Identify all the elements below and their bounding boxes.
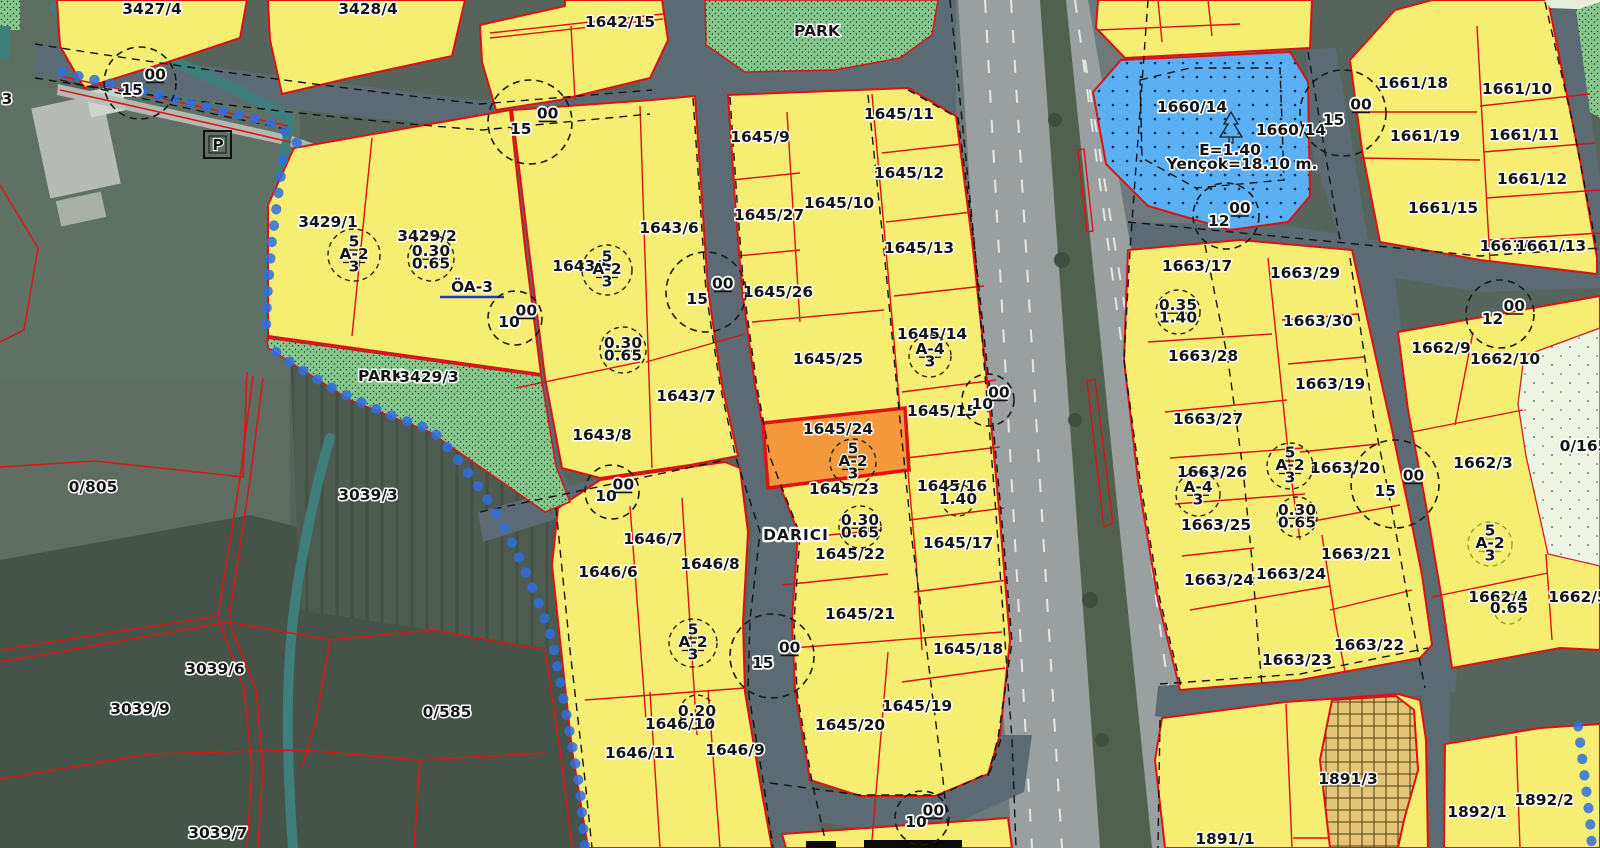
parcel-label: 1645/10 xyxy=(804,194,875,212)
parcel-label: 0/585 xyxy=(423,703,472,721)
parcel-label: 1645/22 xyxy=(815,545,885,563)
parking-symbol: P xyxy=(212,136,223,154)
parcel-label: 1661/10 xyxy=(1482,80,1553,98)
road-width-sup: 00 xyxy=(1403,466,1425,484)
parcel-annotation: Yençok=18.10 m. xyxy=(1166,155,1318,173)
parcel-label: 1663/23 xyxy=(1262,651,1332,669)
parcel-label: 3427/4 xyxy=(122,0,182,18)
parcel-label: 3428/4 xyxy=(338,0,398,18)
parcel-label: 1645/26 xyxy=(743,283,813,301)
cadastral-map[interactable]: 33427/43428/4P0/8053039/33039/63039/9303… xyxy=(0,0,1600,848)
parcel-label: 1645/12 xyxy=(874,164,944,182)
zoning-value: 0.65 xyxy=(841,523,879,541)
parcel-label: 1643/8 xyxy=(572,426,632,444)
parcel-label: 1662/3 xyxy=(1453,454,1513,472)
road-width-sup: 00 xyxy=(1229,199,1251,217)
parcel-label: 1663/24 xyxy=(1256,565,1327,583)
parcel-label: 1663/17 xyxy=(1162,257,1232,275)
road-width-sup: 00 xyxy=(988,383,1010,401)
parcel-label: 1645/27 xyxy=(734,206,804,224)
road-width-value: 15 xyxy=(121,81,143,99)
parcel-label: 1646/7 xyxy=(623,530,683,548)
road-width-value: 15 xyxy=(752,654,774,672)
parcel-label: 3039/6 xyxy=(185,660,245,678)
zoning-value: 0.65 xyxy=(1490,599,1528,617)
parcel-label: 1663/22 xyxy=(1334,636,1404,654)
parcel-label: 0/165 xyxy=(1560,437,1600,455)
parcel-label: 1645/17 xyxy=(923,534,993,552)
parcel-label: 1645/9 xyxy=(730,128,790,146)
parcel-label: 3429/1 xyxy=(298,213,358,231)
zoning-value: 3 xyxy=(1193,490,1204,508)
parcel-label: 3429/3 xyxy=(399,368,459,386)
parcel-label: 1661/15 xyxy=(1408,199,1478,217)
zoning-value: 3 xyxy=(925,352,936,370)
parcel-label: 1891/3 xyxy=(1318,770,1378,788)
parcel-label: PARK xyxy=(794,22,841,40)
parcel-label: 1663/19 xyxy=(1295,375,1365,393)
road-width-sup: 00 xyxy=(923,801,945,819)
parcel-label: 1646/6 xyxy=(578,563,638,581)
parcel-label: 1663/21 xyxy=(1321,545,1391,563)
zoning-value: 3 xyxy=(688,646,699,664)
parcel-label: 1661/19 xyxy=(1390,127,1460,145)
road-width-value: 15 xyxy=(1323,111,1345,129)
parcel-label: 1646/9 xyxy=(705,741,765,759)
zoning-value: 1.40 xyxy=(1159,308,1197,326)
clipped-text-bottom xyxy=(806,840,962,848)
zone-code-label: ÖA-3 xyxy=(451,277,493,296)
place-label: DARICI xyxy=(763,526,829,544)
zoning-value: 0.65 xyxy=(412,254,450,272)
parcel-label: 1642/15 xyxy=(585,13,655,31)
selected-parcel-label: 1645/24 xyxy=(803,420,874,438)
parcel-label: 1663/20 xyxy=(1310,459,1381,477)
parcel-label: 1892/2 xyxy=(1514,791,1574,809)
parcel-label: 1663/25 xyxy=(1181,516,1251,534)
parcel-label: PARK xyxy=(358,367,405,385)
road-width-sup: 00 xyxy=(712,274,734,292)
zoning-value: 1.40 xyxy=(939,490,977,508)
parcel-label: 1662/9 xyxy=(1411,339,1471,357)
parcel-label: 3039/7 xyxy=(188,824,248,842)
parcel-label: 1643/7 xyxy=(656,387,716,405)
parcel-label: 1645/18 xyxy=(933,640,1003,658)
road-width-sup: 00 xyxy=(613,475,635,493)
parcel-label: 1662/10 xyxy=(1470,350,1541,368)
parcel-label: 1892/1 xyxy=(1447,803,1507,821)
parcel-label: 1645/20 xyxy=(815,716,886,734)
road-width-value: 12 xyxy=(1482,310,1504,328)
parcel-label: 1663/28 xyxy=(1168,347,1238,365)
parcel-label: 1646/8 xyxy=(680,555,740,573)
parcel-label: 1661/18 xyxy=(1378,74,1448,92)
zoning-value: 3 xyxy=(602,273,613,291)
parcel-label: 1661/13 xyxy=(1516,237,1586,255)
parcel-label: 1663/24 xyxy=(1184,571,1255,589)
road-width-sup: 00 xyxy=(1350,95,1372,113)
parcel-label: 1661/12 xyxy=(1497,170,1567,188)
zoning-value: 3 xyxy=(1485,547,1496,565)
parcel-label: 1661/11 xyxy=(1489,126,1559,144)
road-width-sup: 00 xyxy=(779,638,801,656)
road-width-sup: 00 xyxy=(537,104,559,122)
zoning-value: 3 xyxy=(848,465,859,483)
parcel-label: 1645/25 xyxy=(793,350,863,368)
parcel-label: 1660/14 xyxy=(1256,121,1327,139)
parcel-label: 1663/30 xyxy=(1283,312,1354,330)
zoning-value: 0.20 xyxy=(678,702,716,720)
parcel-label: 1663/27 xyxy=(1173,410,1243,428)
parcel-label: 1646/11 xyxy=(605,744,675,762)
road-width-value: 15 xyxy=(686,290,708,308)
road-width-value: 15 xyxy=(510,120,532,138)
parcel-label: 1645/21 xyxy=(825,605,895,623)
parcel-label: 3039/3 xyxy=(338,486,398,504)
parcel-label: 1645/11 xyxy=(864,105,934,123)
zoning-value: 0.65 xyxy=(1278,513,1316,531)
parcel-label: 1645/15 xyxy=(907,402,977,420)
road-width-sup: 00 xyxy=(144,65,166,83)
zoning-value: 3 xyxy=(1285,469,1296,487)
map-viewport[interactable]: 33427/43428/4P0/8053039/33039/63039/9303… xyxy=(0,0,1600,848)
parcel-label: 1663/29 xyxy=(1270,264,1340,282)
road-width-value: 15 xyxy=(1375,482,1397,500)
parcel-label: 3039/9 xyxy=(110,700,170,718)
parcel-label: 1643/6 xyxy=(639,219,699,237)
parcel-label: 0/805 xyxy=(69,478,118,496)
road-width-sup: 00 xyxy=(516,301,538,319)
road-width-value: 12 xyxy=(1208,212,1230,230)
parcel-block[interactable] xyxy=(552,462,772,848)
parcel-label: 1660/14 xyxy=(1157,98,1228,116)
zoning-value: 3 xyxy=(349,258,360,276)
parcel-label: 1645/19 xyxy=(882,697,952,715)
road-width-sup: 00 xyxy=(1503,297,1525,315)
parcel-label: 3 xyxy=(2,90,13,108)
parcel-label: 1662/5 xyxy=(1548,588,1600,606)
parcel-label: 1891/1 xyxy=(1195,830,1255,848)
parcel-label: 1645/13 xyxy=(884,239,954,257)
zoning-value: 0.65 xyxy=(604,346,642,364)
